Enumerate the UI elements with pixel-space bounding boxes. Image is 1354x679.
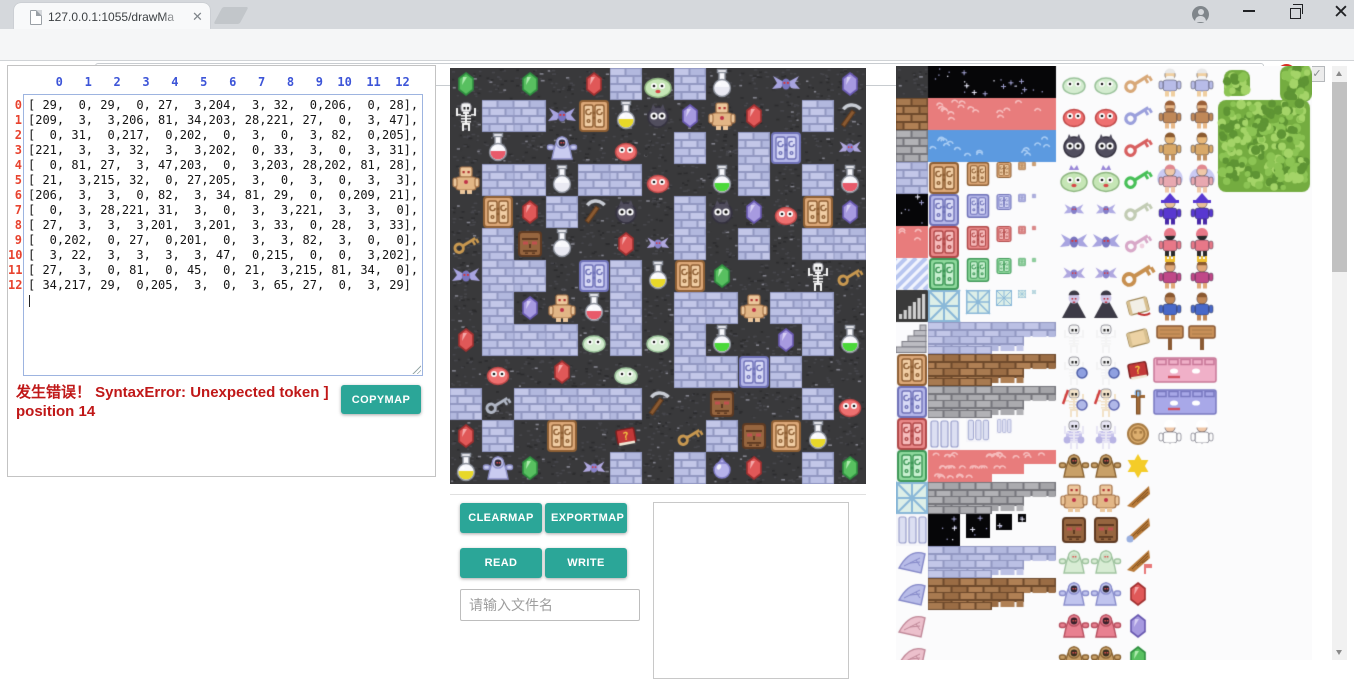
- profile-icon[interactable]: [1192, 6, 1209, 23]
- browser-tab[interactable]: 127.0.0.1:1055/drawMa ✕: [14, 3, 210, 29]
- matrix-panel: 0 1 2 3 4 5 6 7 8 9 10 11 12 0 1 2 3 4 5…: [7, 65, 436, 477]
- write-button[interactable]: WRITE: [545, 548, 627, 578]
- export-result-box: [653, 502, 849, 679]
- scrollbar-down-arrow[interactable]: [1332, 645, 1347, 660]
- column-headers: 0 1 2 3 4 5 6 7 8 9 10 11 12: [34, 75, 410, 89]
- scrollbar-thumb[interactable]: [1332, 82, 1347, 272]
- scrollbar-up-arrow[interactable]: [1332, 66, 1347, 81]
- tileset-canvas[interactable]: [896, 66, 1312, 660]
- copymap-button[interactable]: COPYMAP: [341, 385, 421, 414]
- text-caret: [29, 295, 30, 307]
- browser-tab-bar: 127.0.0.1:1055/drawMa ✕ ✕: [0, 0, 1354, 29]
- exportmap-button[interactable]: EXPORTMAP: [545, 503, 627, 533]
- map-canvas[interactable]: [450, 68, 866, 484]
- browser-toolbar: ← → ↻ i 127.0.0.1:1055/drawMapGUI.html ☆…: [0, 29, 1354, 61]
- tab-close-icon[interactable]: ✕: [190, 9, 205, 24]
- error-message: 发生错误！ SyntaxError: Unexpected token ] po…: [16, 384, 344, 422]
- tab-title-fade: [162, 9, 184, 26]
- matrix-textarea[interactable]: [ 29, 0, 29, 0, 27, 3,204, 3, 32, 0,206,…: [23, 94, 423, 376]
- new-tab-button[interactable]: [213, 7, 248, 24]
- read-button[interactable]: READ: [460, 548, 542, 578]
- window-close-button[interactable]: ✕: [1326, 0, 1354, 28]
- matrix-text: [ 29, 0, 29, 0, 27, 3,204, 3, 32, 0,206,…: [28, 98, 418, 293]
- map-controls: CLEARMAP EXPORTMAP READ WRITE: [450, 494, 866, 661]
- page-favicon: [30, 10, 42, 25]
- row-labels: 0 1 2 3 4 5 6 7 8 9 10 11 12: [8, 98, 22, 293]
- filename-input[interactable]: [460, 589, 640, 621]
- clearmap-button[interactable]: CLEARMAP: [460, 503, 542, 533]
- window-minimize-button[interactable]: [1234, 0, 1264, 28]
- page-scrollbar[interactable]: [1332, 66, 1347, 660]
- window-restore-button[interactable]: [1280, 0, 1310, 28]
- resize-grip[interactable]: [411, 364, 421, 374]
